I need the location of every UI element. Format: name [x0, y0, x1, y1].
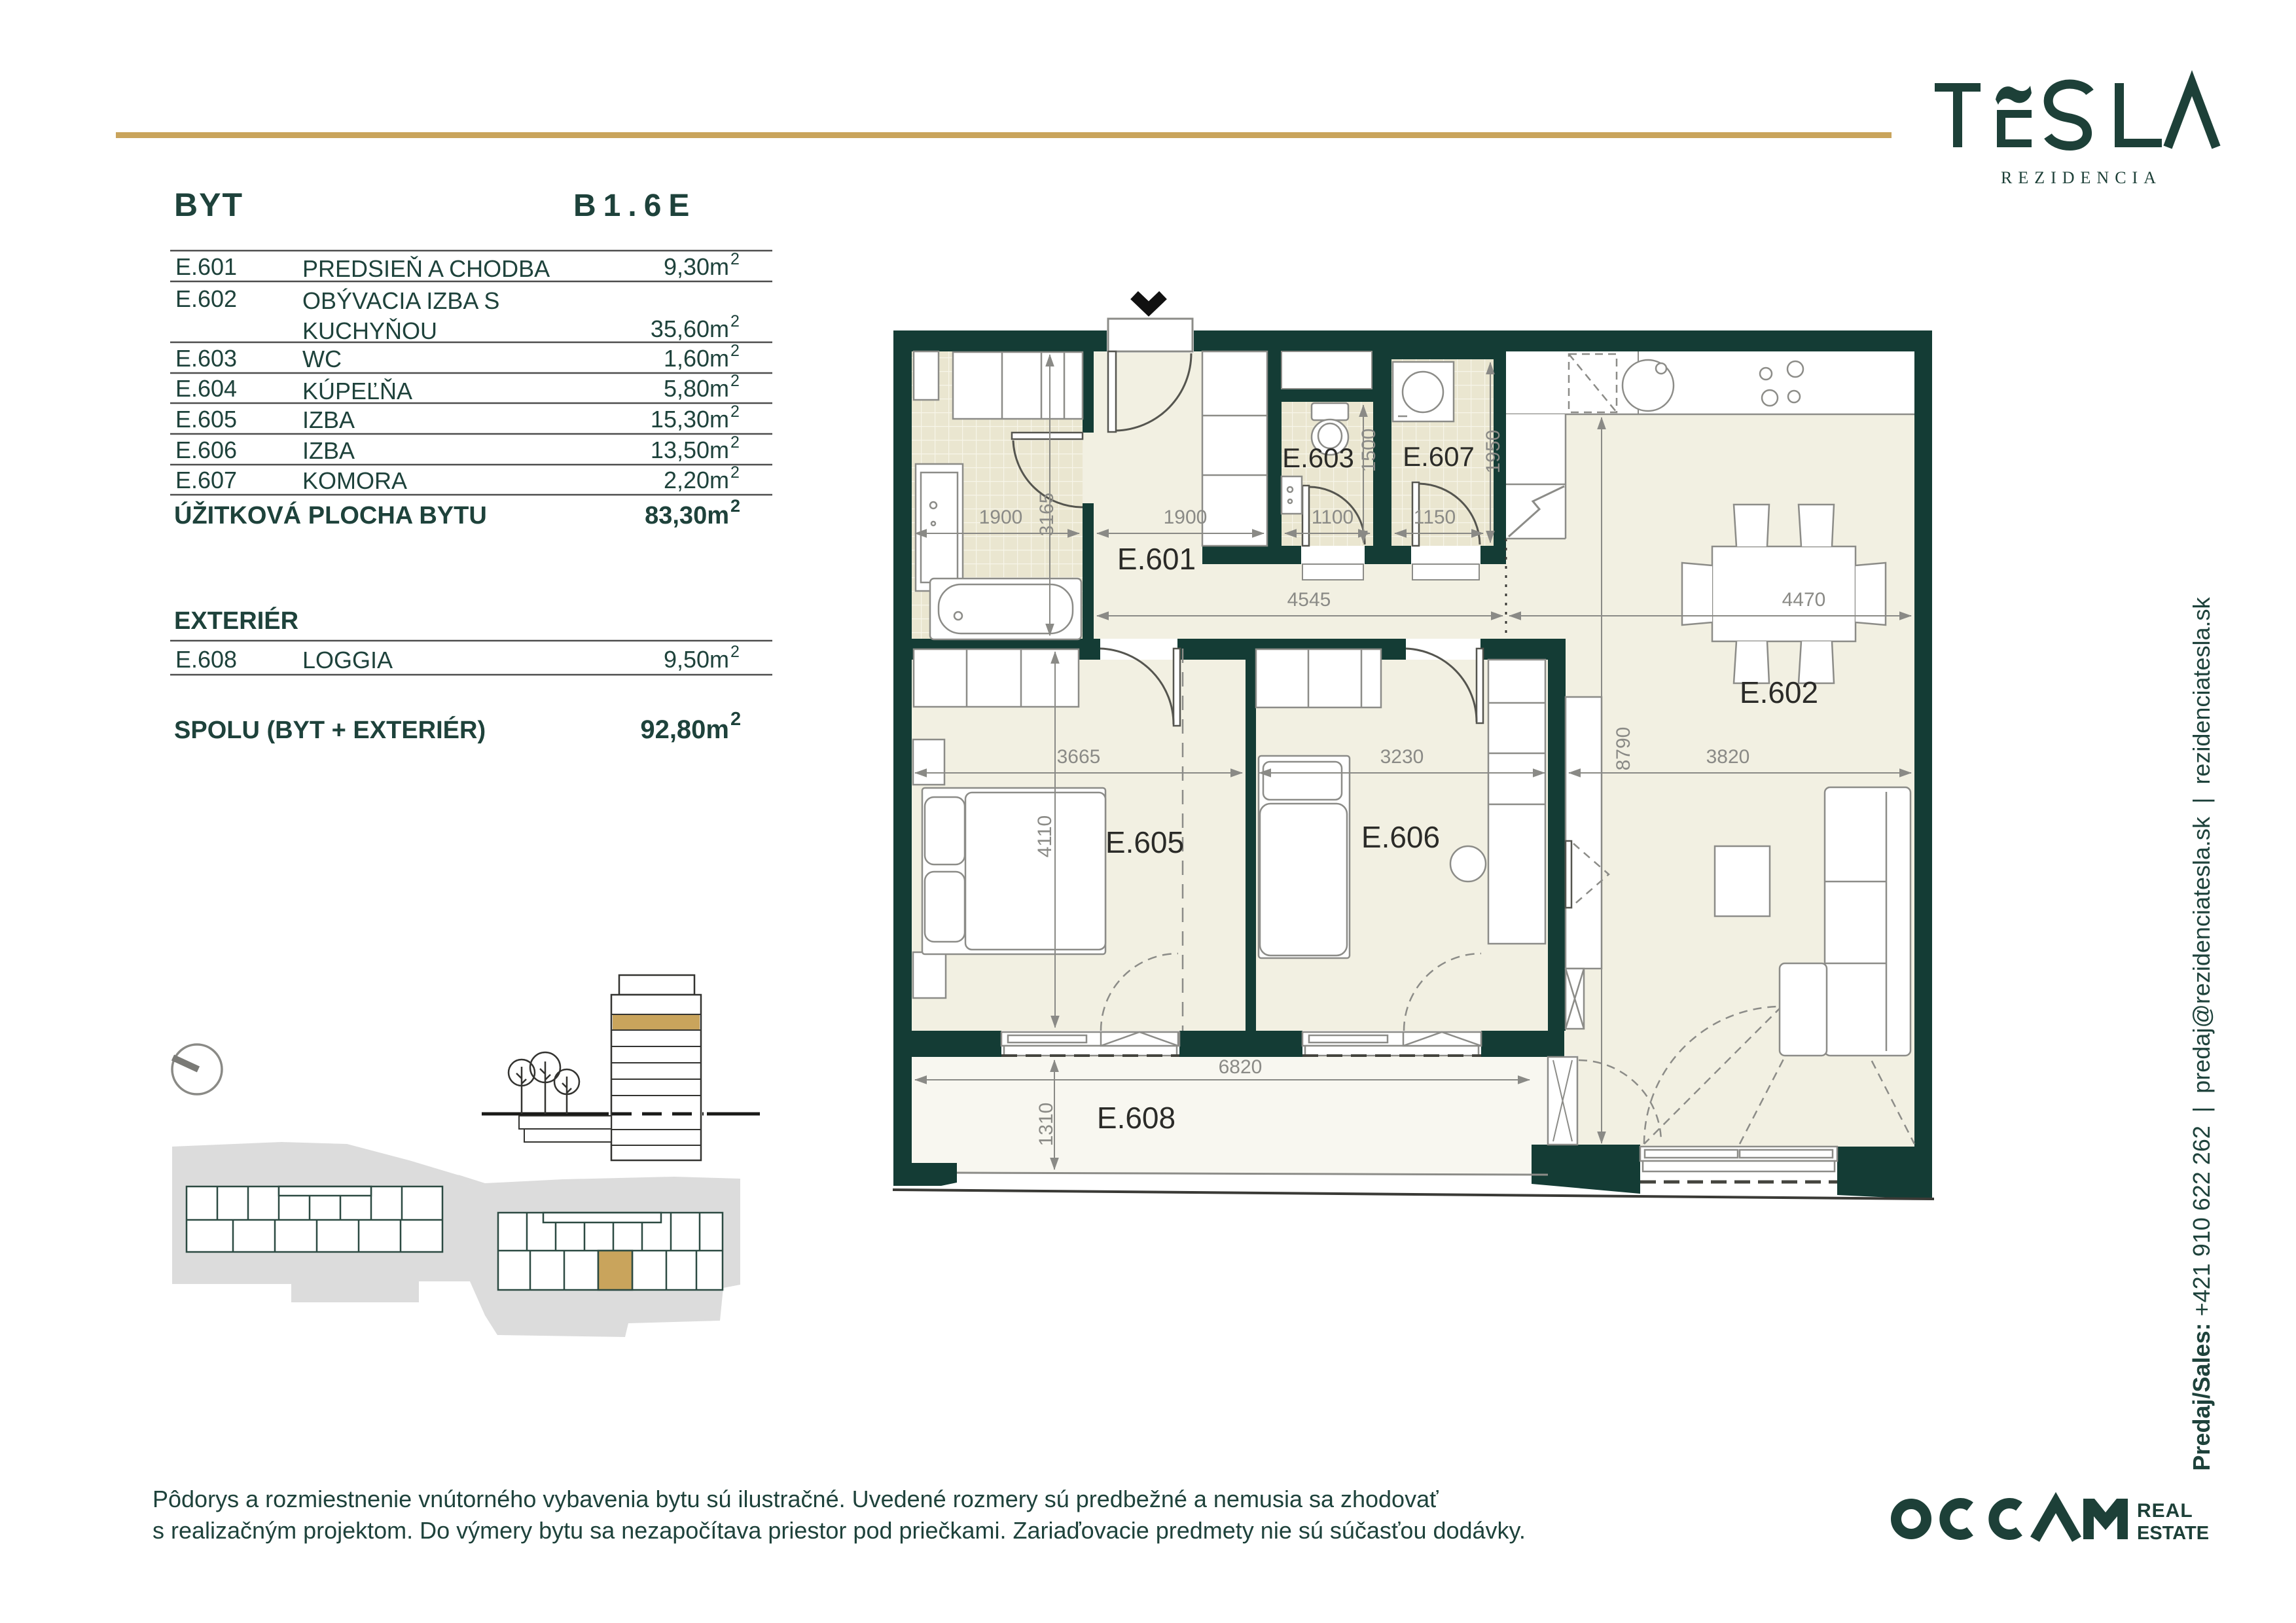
svg-text:E.606: E.606 — [175, 437, 237, 463]
svg-text:E.607: E.607 — [175, 467, 237, 493]
svg-text:LOGGIA: LOGGIA — [302, 647, 393, 673]
svg-text:E.603: E.603 — [175, 345, 237, 372]
svg-text:1150: 1150 — [1414, 507, 1456, 528]
svg-text:Pôdorys a rozmiestnenie vnútor: Pôdorys a rozmiestnenie vnútorného vybav… — [152, 1486, 1439, 1512]
svg-text:BYT: BYT — [174, 187, 243, 223]
svg-text:9,30m: 9,30m — [664, 253, 729, 280]
svg-text:WC: WC — [302, 346, 342, 372]
svg-text:8790: 8790 — [1613, 727, 1634, 771]
svg-text:4110: 4110 — [1034, 815, 1056, 858]
svg-text:3820: 3820 — [1706, 746, 1750, 768]
svg-text:IZBA: IZBA — [302, 406, 355, 433]
svg-text:5,80m: 5,80m — [664, 375, 729, 402]
svg-text:PREDSIEŇ A CHODBA: PREDSIEŇ A CHODBA — [302, 255, 550, 282]
svg-text:2: 2 — [730, 496, 740, 516]
svg-text:2: 2 — [730, 433, 740, 452]
svg-text:2: 2 — [730, 463, 740, 482]
svg-text:ESTATE: ESTATE — [2137, 1523, 2209, 1544]
svg-text:13,50m: 13,50m — [651, 437, 729, 463]
svg-text:B1.6E: B1.6E — [573, 188, 696, 223]
svg-text:E.602: E.602 — [175, 285, 237, 312]
svg-text:s realizačným projektom. Do vý: s realizačným projektom. Do výmery bytu … — [152, 1517, 1526, 1544]
svg-text:83,30m: 83,30m — [645, 502, 729, 529]
svg-text:SPOLU (BYT + EXTERIÉR): SPOLU (BYT + EXTERIÉR) — [174, 715, 486, 744]
svg-text:2,20m: 2,20m — [664, 467, 729, 493]
svg-text:REAL: REAL — [2137, 1500, 2193, 1522]
svg-text:1500: 1500 — [1358, 429, 1380, 473]
svg-text:KOMORA: KOMORA — [302, 467, 407, 494]
svg-text:92,80m: 92,80m — [640, 715, 729, 744]
svg-text:2: 2 — [730, 402, 740, 421]
svg-text:3665: 3665 — [1057, 746, 1101, 768]
svg-text:ÚŽITKOVÁ PLOCHA BYTU: ÚŽITKOVÁ PLOCHA BYTU — [174, 501, 487, 529]
svg-text:E.603: E.603 — [1282, 442, 1354, 473]
svg-text:15,30m: 15,30m — [651, 406, 729, 433]
svg-text:EXTERIÉR: EXTERIÉR — [174, 606, 298, 635]
svg-text:IZBA: IZBA — [302, 437, 355, 464]
svg-text:3230: 3230 — [1380, 746, 1424, 768]
svg-text:2: 2 — [730, 643, 740, 661]
svg-text:9,50m: 9,50m — [664, 646, 729, 673]
svg-text:4545: 4545 — [1287, 589, 1331, 611]
svg-text:E.601: E.601 — [1117, 542, 1196, 576]
svg-text:KUCHYŇOU: KUCHYŇOU — [302, 317, 437, 344]
svg-text:1900: 1900 — [1164, 507, 1208, 528]
svg-text:4470: 4470 — [1782, 589, 1826, 611]
svg-text:35,60m: 35,60m — [651, 315, 729, 342]
svg-text:E.606: E.606 — [1361, 820, 1440, 854]
svg-text:1310: 1310 — [1035, 1103, 1057, 1147]
svg-text:2: 2 — [730, 342, 740, 360]
svg-text:E.608: E.608 — [175, 646, 237, 673]
svg-text:1900: 1900 — [979, 507, 1023, 528]
svg-text:E.607: E.607 — [1403, 441, 1475, 472]
svg-text:1,60m: 1,60m — [664, 345, 729, 372]
svg-text:OBÝVACIA IZBA S: OBÝVACIA IZBA S — [302, 287, 499, 314]
svg-text:REZIDENCIA: REZIDENCIA — [2001, 168, 2162, 187]
svg-text:1950: 1950 — [1482, 430, 1504, 474]
svg-text:3165: 3165 — [1036, 493, 1058, 537]
svg-text:2: 2 — [730, 250, 740, 268]
svg-text:E.605: E.605 — [1105, 825, 1184, 859]
svg-text:E.608: E.608 — [1097, 1101, 1175, 1135]
svg-text:E.602: E.602 — [1740, 675, 1818, 709]
svg-text:2: 2 — [730, 372, 740, 390]
svg-text:E.605: E.605 — [175, 406, 237, 433]
svg-text:E.601: E.601 — [175, 253, 237, 280]
svg-text:2: 2 — [730, 312, 740, 330]
svg-text:6820: 6820 — [1219, 1056, 1263, 1078]
svg-text:1100: 1100 — [1312, 507, 1354, 528]
svg-text:E.604: E.604 — [175, 375, 237, 402]
svg-text:KÚPEĽŇA: KÚPEĽŇA — [302, 378, 412, 404]
svg-text:2: 2 — [730, 709, 741, 730]
svg-text:Predaj/Sales: +421 910 622 262: Predaj/Sales: +421 910 622 262 | predaj@… — [2188, 596, 2215, 1471]
